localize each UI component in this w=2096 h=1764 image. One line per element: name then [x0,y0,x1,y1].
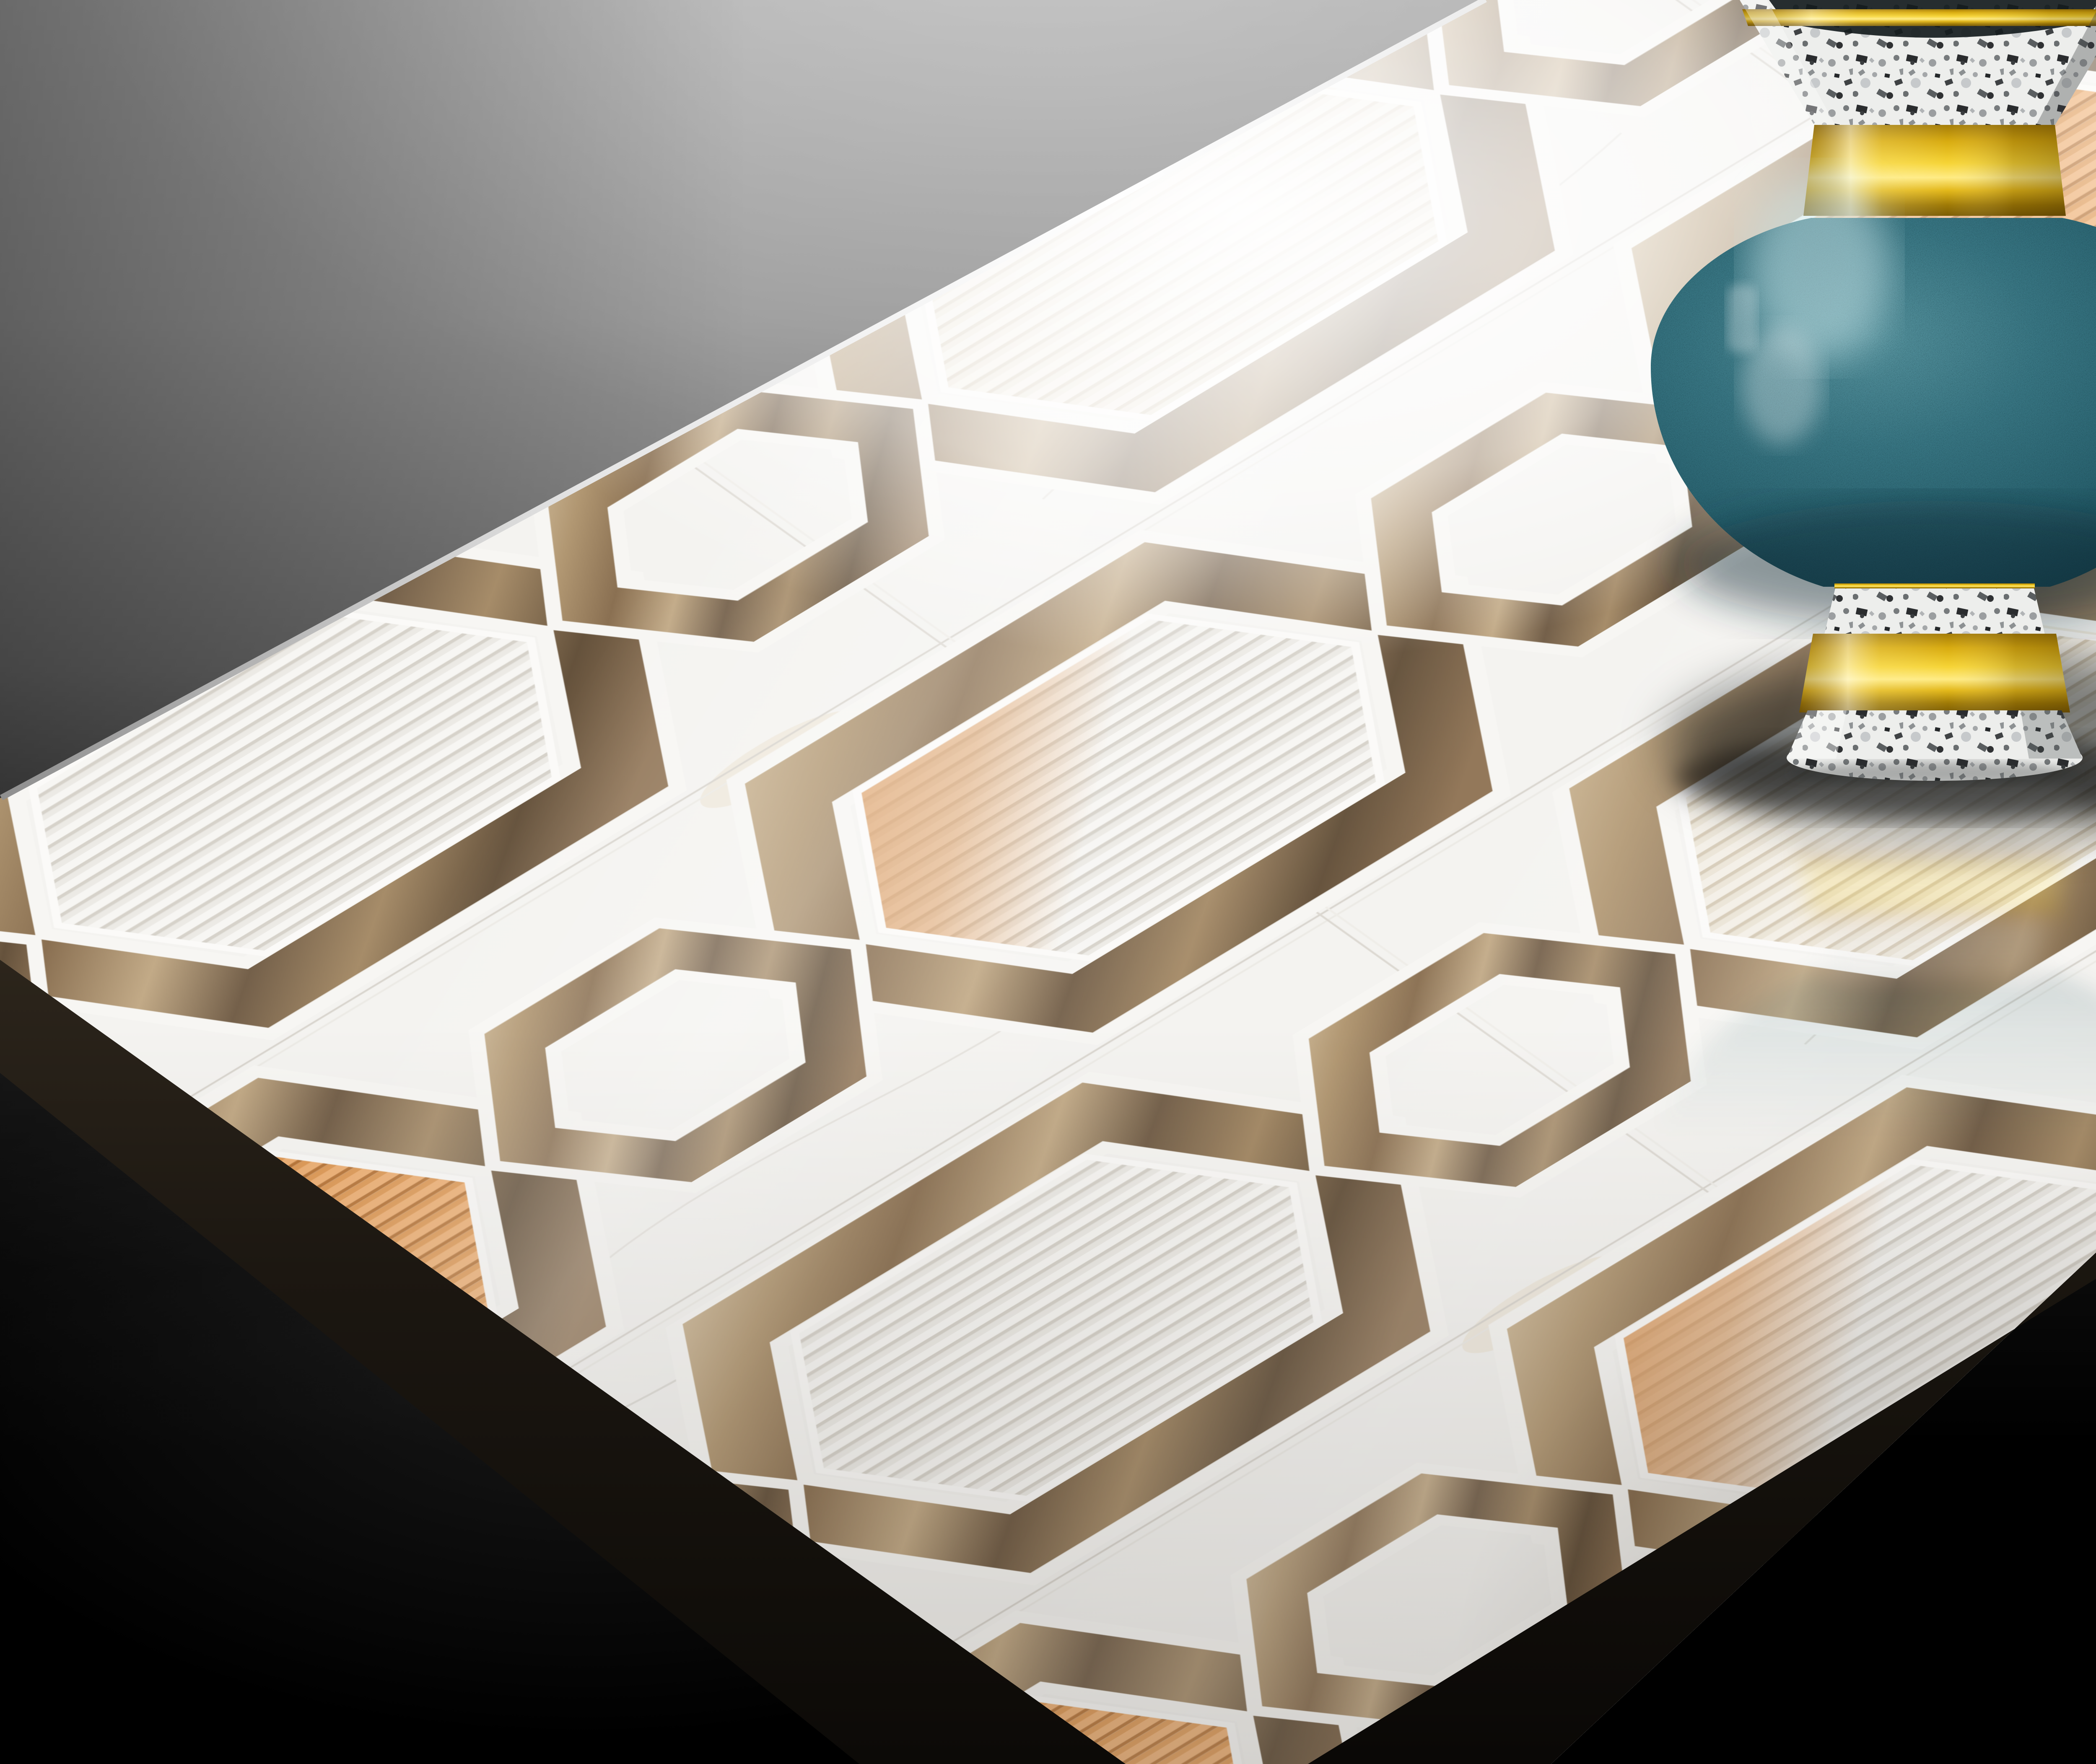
vase-foot [1787,583,2083,785]
teal-ceramic-vase [1601,0,2096,1173]
vase-reflection [1651,777,2096,1173]
vase-rim [1740,0,2096,127]
scene-stage [0,0,2096,1764]
vase-body [1651,176,2096,627]
